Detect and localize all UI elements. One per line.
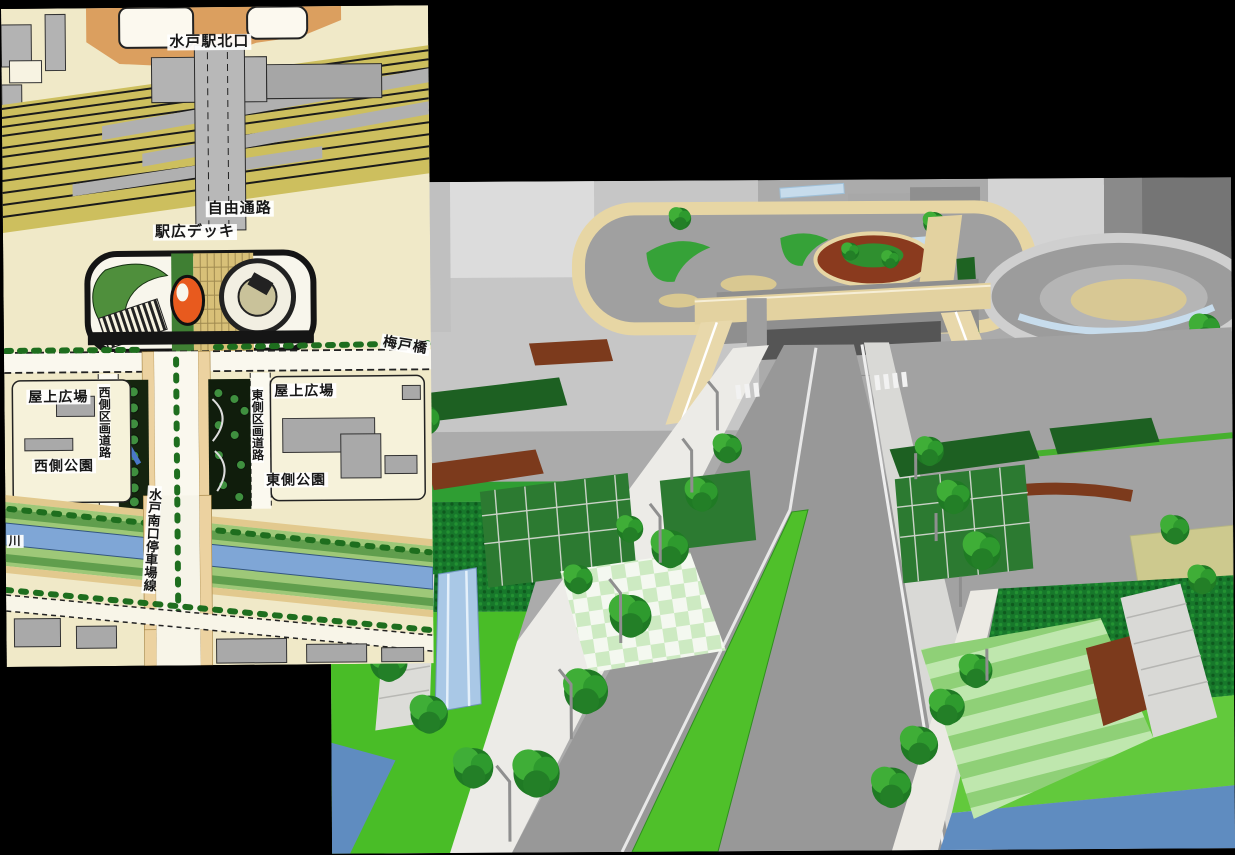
map-label-station-deck: 駅広デッキ	[153, 224, 237, 241]
map-label-west-park: 西側公園	[32, 458, 96, 473]
map-label-west-district-road: 西側区画道路	[97, 384, 110, 460]
render-illustration	[328, 177, 1235, 854]
map-label-free-passage: 自由通路	[206, 201, 274, 217]
site-plan-map-image: 水戸駅北口 自由通路 駅広デッキ 梅戸橋 屋上広場 屋上広場 西側区画道路 東側…	[1, 5, 434, 667]
map-label-east-district-road: 東側区画道路	[250, 387, 263, 463]
map-label-rooftop-plaza-right: 屋上広場	[272, 383, 336, 398]
station-plaza-deck	[87, 252, 314, 352]
map-label-east-park: 東側公園	[264, 472, 328, 487]
deck-circle-plaza	[815, 233, 931, 286]
collage-stage: 水戸駅北口 自由通路 駅広デッキ 梅戸橋 屋上広場 屋上広場 西側区画道路 東側…	[0, 0, 1235, 855]
map-label-rooftop-plaza-left: 屋上広場	[26, 389, 90, 404]
map-label-north-exit: 水戸駅北口	[167, 34, 251, 51]
map-label-river: 川	[7, 535, 24, 548]
cg-rendering-image	[328, 177, 1235, 854]
map-illustration	[1, 5, 434, 667]
